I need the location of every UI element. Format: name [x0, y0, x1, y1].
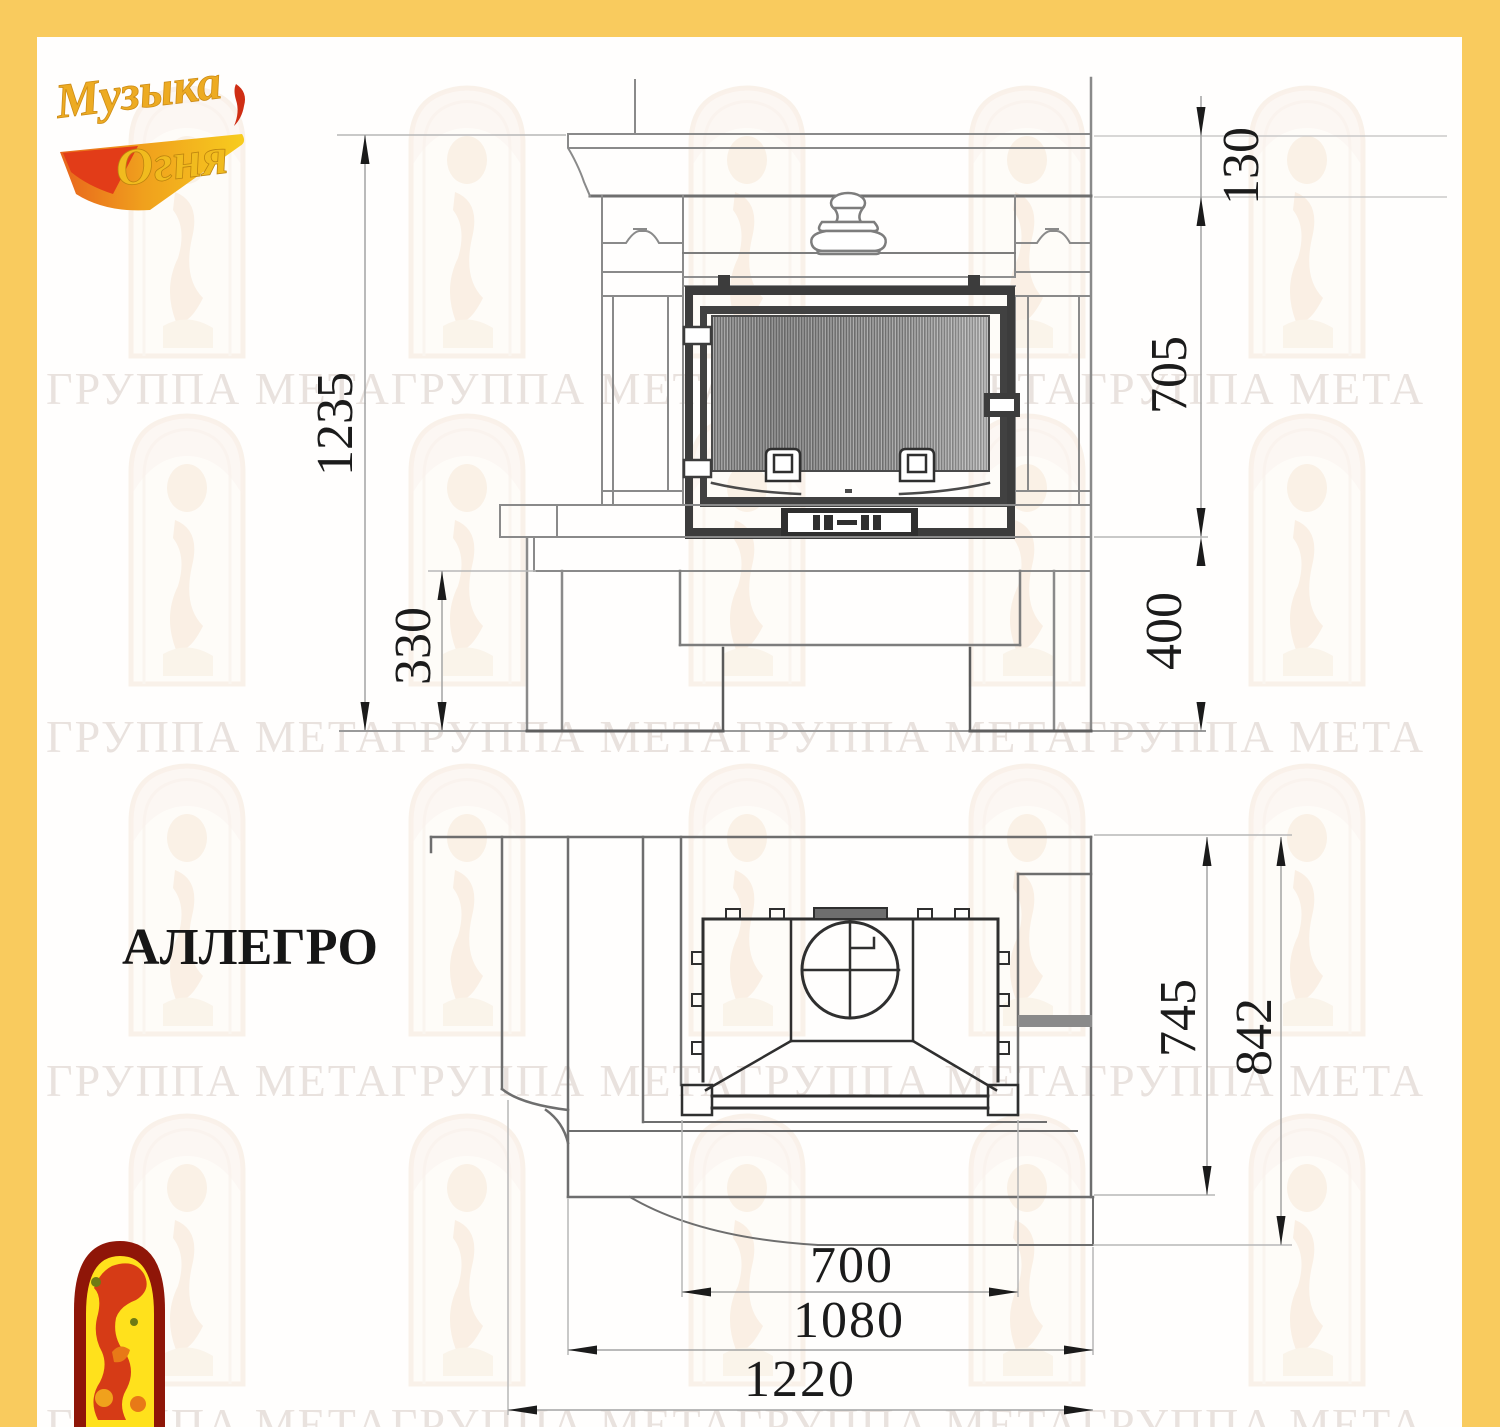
svg-text:ГРУППА МЕТАГРУППА МЕТАГРУППА М: ГРУППА МЕТАГРУППА МЕТАГРУППА МЕТАГРУППА … — [46, 1055, 1425, 1106]
svg-text:700: 700 — [810, 1237, 894, 1294]
svg-text:330: 330 — [385, 607, 442, 685]
svg-text:ГРУППА МЕТАГРУППА МЕТАГРУППА М: ГРУППА МЕТАГРУППА МЕТАГРУППА МЕТАГРУППА … — [46, 1399, 1425, 1427]
svg-text:1235: 1235 — [307, 372, 364, 476]
svg-text:АЛЛЕГРО: АЛЛЕГРО — [122, 919, 378, 976]
svg-text:705: 705 — [1141, 336, 1198, 414]
svg-text:842: 842 — [1226, 998, 1283, 1076]
svg-text:130: 130 — [1213, 127, 1270, 205]
svg-text:400: 400 — [1136, 592, 1193, 670]
svg-text:745: 745 — [1150, 979, 1207, 1057]
svg-text:1220: 1220 — [744, 1351, 856, 1408]
svg-text:1080: 1080 — [793, 1292, 905, 1349]
svg-text:ГРУППА МЕТАГРУППА МЕТАГРУППА М: ГРУППА МЕТАГРУППА МЕТАГРУППА МЕТАГРУППА … — [46, 711, 1425, 762]
